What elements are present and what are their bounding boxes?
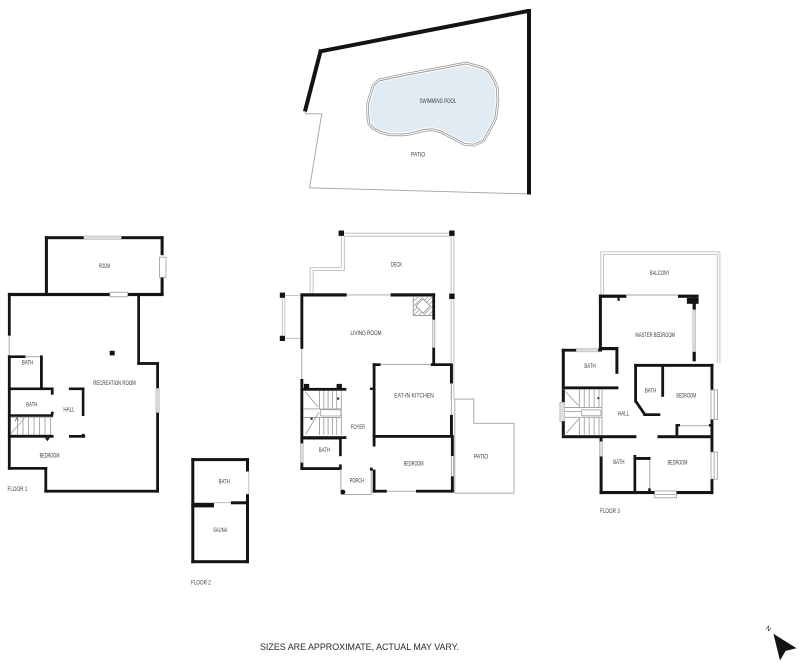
svg-text:BEDROOM: BEDROOM	[40, 453, 60, 460]
svg-text:BATH: BATH	[645, 388, 657, 395]
svg-text:HALL: HALL	[63, 407, 75, 414]
svg-text:FOYER: FOYER	[351, 424, 365, 431]
svg-text:BATH: BATH	[319, 447, 331, 454]
svg-text:BEDROOM: BEDROOM	[404, 461, 424, 468]
svg-text:LIVING ROOM: LIVING ROOM	[350, 330, 381, 337]
svg-text:FLOOR 3: FLOOR 3	[600, 508, 620, 515]
svg-text:BATH: BATH	[26, 402, 38, 409]
svg-text:SIZES ARE APPROXIMATE, ACTUAL: SIZES ARE APPROXIMATE, ACTUAL MAY VARY.	[260, 642, 459, 652]
svg-text:SWIMMING POOL: SWIMMING POOL	[420, 98, 457, 105]
svg-text:FLOOR 2: FLOOR 2	[191, 580, 211, 587]
svg-text:BALCONY: BALCONY	[650, 270, 670, 277]
svg-text:SAUNA: SAUNA	[213, 527, 228, 534]
svg-text:BATH: BATH	[584, 363, 596, 370]
svg-text:BATH: BATH	[22, 360, 34, 367]
svg-text:BATH: BATH	[219, 478, 231, 485]
svg-text:BATH: BATH	[613, 459, 625, 466]
svg-text:MASTER BEDROOM: MASTER BEDROOM	[635, 332, 675, 339]
svg-text:EAT-IN KITCHEN: EAT-IN KITCHEN	[394, 392, 434, 399]
svg-text:PATIO: PATIO	[474, 453, 488, 460]
svg-text:BEDROOM: BEDROOM	[676, 392, 696, 399]
svg-text:BEDROOM: BEDROOM	[668, 459, 688, 466]
svg-text:PORCH: PORCH	[350, 478, 364, 485]
svg-text:PATIO: PATIO	[411, 152, 425, 159]
svg-text:ROOM: ROOM	[99, 263, 110, 270]
svg-text:FLOOR 1: FLOOR 1	[8, 486, 28, 493]
svg-text:RECREATION ROOM: RECREATION ROOM	[93, 380, 136, 387]
svg-text:DECK: DECK	[391, 262, 403, 269]
svg-text:HALL: HALL	[618, 411, 630, 418]
